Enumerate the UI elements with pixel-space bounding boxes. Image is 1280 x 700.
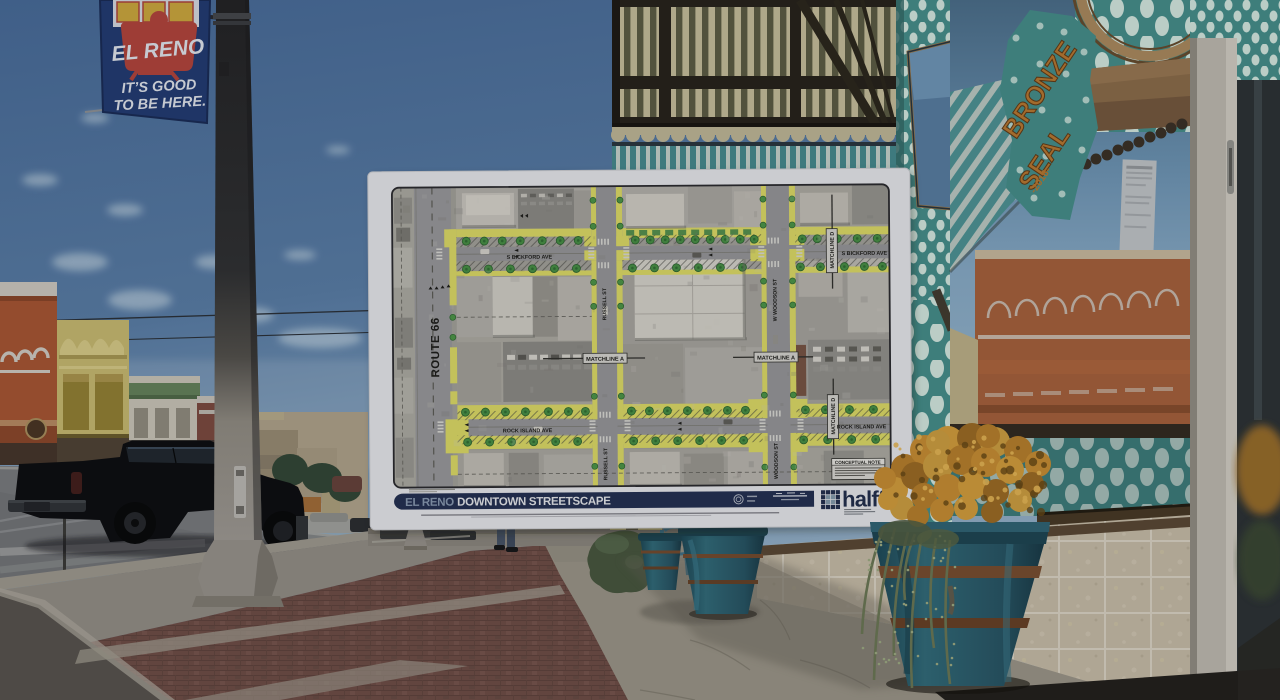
svg-text:W WOODSON ST: W WOODSON ST [773,278,779,321]
svg-text:ROCK ISLAND AVE: ROCK ISLAND AVE [503,428,553,434]
svg-text:WOODSON ST: WOODSON ST [774,442,780,479]
svg-text:RUSSELL ST: RUSSELL ST [603,447,609,480]
svg-text:DOWNTOWN STREETSCAPE: DOWNTOWN STREETSCAPE [457,496,611,509]
svg-text:MATCHLINE D: MATCHLINE D [830,232,836,269]
svg-text:S BICKFORD AVE: S BICKFORD AVE [842,251,888,257]
svg-text:S BICKFORD AVE: S BICKFORD AVE [507,255,553,261]
svg-text:EL RENO: EL RENO [405,497,454,509]
svg-text:MATCHLINE A: MATCHLINE A [757,355,795,361]
svg-text:RUSSELL ST: RUSSELL ST [602,287,608,320]
svg-text:MATCHLINE A: MATCHLINE A [586,357,624,363]
svg-text:ROUTE 66: ROUTE 66 [430,317,442,377]
svg-text:CONCEPTUAL NOTE: CONCEPTUAL NOTE [835,460,881,465]
svg-text:ROCK ISLAND AVE: ROCK ISLAND AVE [837,424,887,430]
